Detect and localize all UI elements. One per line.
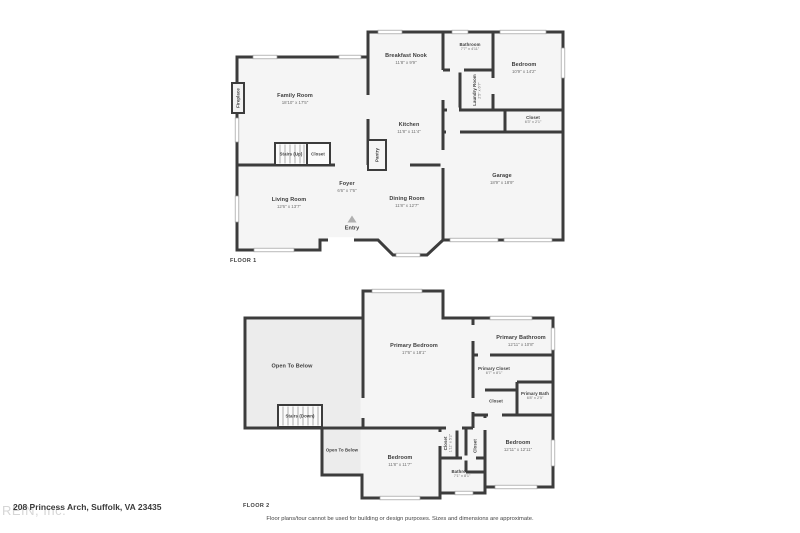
room-label-fireplace: Fireplace [235, 88, 240, 108]
room-label-closet-bedroom-f1: Closet 6'3" x 2'1" [525, 115, 542, 125]
room-dims: 7'1" x 8'1" [451, 474, 472, 479]
room-label-stairs-down: Stairs (Down) [286, 413, 315, 418]
room-dims: 6'6" x 7'6" [337, 188, 356, 194]
room-dims: 1'11" x 5'2" [448, 434, 453, 452]
room-dims: 6'3" x 2'1" [525, 120, 542, 125]
room-label-entry: Entry [345, 226, 360, 233]
room-label-open-to-below-small: Open To Below [326, 447, 358, 452]
room-label-living-room: Living Room 12'6" x 13'7" [272, 197, 306, 209]
room-name: Dining Room [389, 196, 424, 203]
room-name: Pantry [374, 148, 379, 162]
disclaimer-text: Floor plans/tour cannot be used for buil… [0, 516, 800, 522]
room-name: Closet [311, 151, 325, 156]
room-name: Breakfast Nook [385, 53, 427, 60]
room-name: Primary Bedroom [390, 343, 438, 350]
room-label-primary-bath: Primary Bath 6'8" x 2'5" [521, 391, 549, 401]
entry-opening [328, 237, 354, 242]
floor2-tag: FLOOR 2 [243, 503, 270, 509]
floorplan-drawing [0, 0, 800, 533]
room-label-pantry: Pantry [374, 148, 379, 162]
room-label-bedroom-left-f2: Bedroom 11'8" x 11'7" [388, 455, 413, 467]
room-name: Stairs (Up) [280, 151, 303, 156]
room-label-stairs-up: Stairs (Up) [280, 151, 303, 156]
room-label-kitchen: Kitchen 11'8" x 11'4" [397, 122, 420, 134]
room-label-breakfast-nook: Breakfast Nook 11'8" x 9'9" [385, 53, 427, 65]
room-dims: 6'7" x 8'1" [478, 371, 510, 376]
room-dims: 6'8" x 2'5" [521, 396, 549, 401]
room-name: Closet [472, 439, 477, 453]
room-label-garage: Garage 18'9" x 18'9" [490, 173, 514, 185]
room-label-primary-bathroom: Primary Bathroom 12'11" x 10'8" [496, 335, 546, 347]
room-dims: 12'6" x 13'7" [272, 204, 306, 210]
room-name: Living Room [272, 197, 306, 204]
room-name: Garage [490, 173, 514, 180]
room-name: Closet [489, 398, 503, 403]
room-label-closet-hall-f2: Closet [489, 398, 503, 403]
room-dims: 17'6" x 18'1" [390, 350, 438, 356]
room-label-closet-stairs: Closet [311, 151, 325, 156]
room-name: Stairs (Down) [286, 413, 315, 418]
room-dims: 18'10" x 17'5" [277, 100, 313, 106]
room-label-laundry-room: Laundry Room 2'5" x 6'7" [472, 74, 482, 106]
room-dims: 11'8" x 12'7" [389, 203, 424, 209]
room-name: Fireplace [235, 88, 240, 108]
floor2-plan [245, 289, 555, 500]
room-name: Bedroom [512, 62, 537, 69]
room-name: Kitchen [397, 122, 420, 129]
room-label-family-room: Family Room 18'10" x 17'5" [277, 93, 313, 105]
floor1-tag: FLOOR 1 [230, 258, 257, 264]
room-name: Bedroom [504, 440, 532, 447]
room-name: Foyer [337, 181, 356, 188]
room-dims: 7'7" x 4'11" [459, 47, 480, 52]
room-name: Entry [345, 226, 360, 233]
room-label-closet-right-f2: Closet [472, 439, 477, 453]
room-label-open-to-below-large: Open To Below [272, 364, 313, 371]
floor-plan-page: Family Room 18'10" x 17'5" Breakfast Noo… [0, 0, 800, 533]
room-dims: 10'9" x 14'2" [512, 69, 537, 75]
room-name: Open To Below [326, 447, 358, 452]
room-label-bedroom-right-f2: Bedroom 12'11" x 12'11" [504, 440, 532, 452]
room-dims: 12'11" x 12'11" [504, 447, 532, 453]
room-dims: 12'11" x 10'8" [496, 342, 546, 348]
room-label-primary-closet: Primary Closet 6'7" x 8'1" [478, 366, 510, 376]
room-label-closet-left-f2: Closet 1'11" x 5'2" [443, 434, 453, 452]
property-address: 208 Princess Arch, Suffolk, VA 23435 [13, 502, 162, 512]
room-label-bedroom-f1: Bedroom 10'9" x 14'2" [512, 62, 537, 74]
room-name: Bedroom [388, 455, 413, 462]
room-dims: 11'8" x 11'7" [388, 462, 413, 468]
room-label-foyer: Foyer 6'6" x 7'6" [337, 181, 356, 193]
room-label-bathroom-f1: Bathroom 7'7" x 4'11" [459, 42, 480, 52]
room-name: Family Room [277, 93, 313, 100]
room-name: Primary Bathroom [496, 335, 546, 342]
room-label-primary-bedroom: Primary Bedroom 17'6" x 18'1" [390, 343, 438, 355]
room-dims: 18'9" x 18'9" [490, 180, 514, 186]
room-name: Open To Below [272, 364, 313, 371]
room-label-bathroom-f2: Bathroom 7'1" x 8'1" [451, 469, 472, 479]
room-dims: 11'8" x 9'9" [385, 60, 427, 66]
room-dims: 11'8" x 11'4" [397, 129, 420, 135]
room-dims: 2'5" x 6'7" [477, 74, 482, 106]
room-label-dining-room: Dining Room 11'8" x 12'7" [389, 196, 424, 208]
